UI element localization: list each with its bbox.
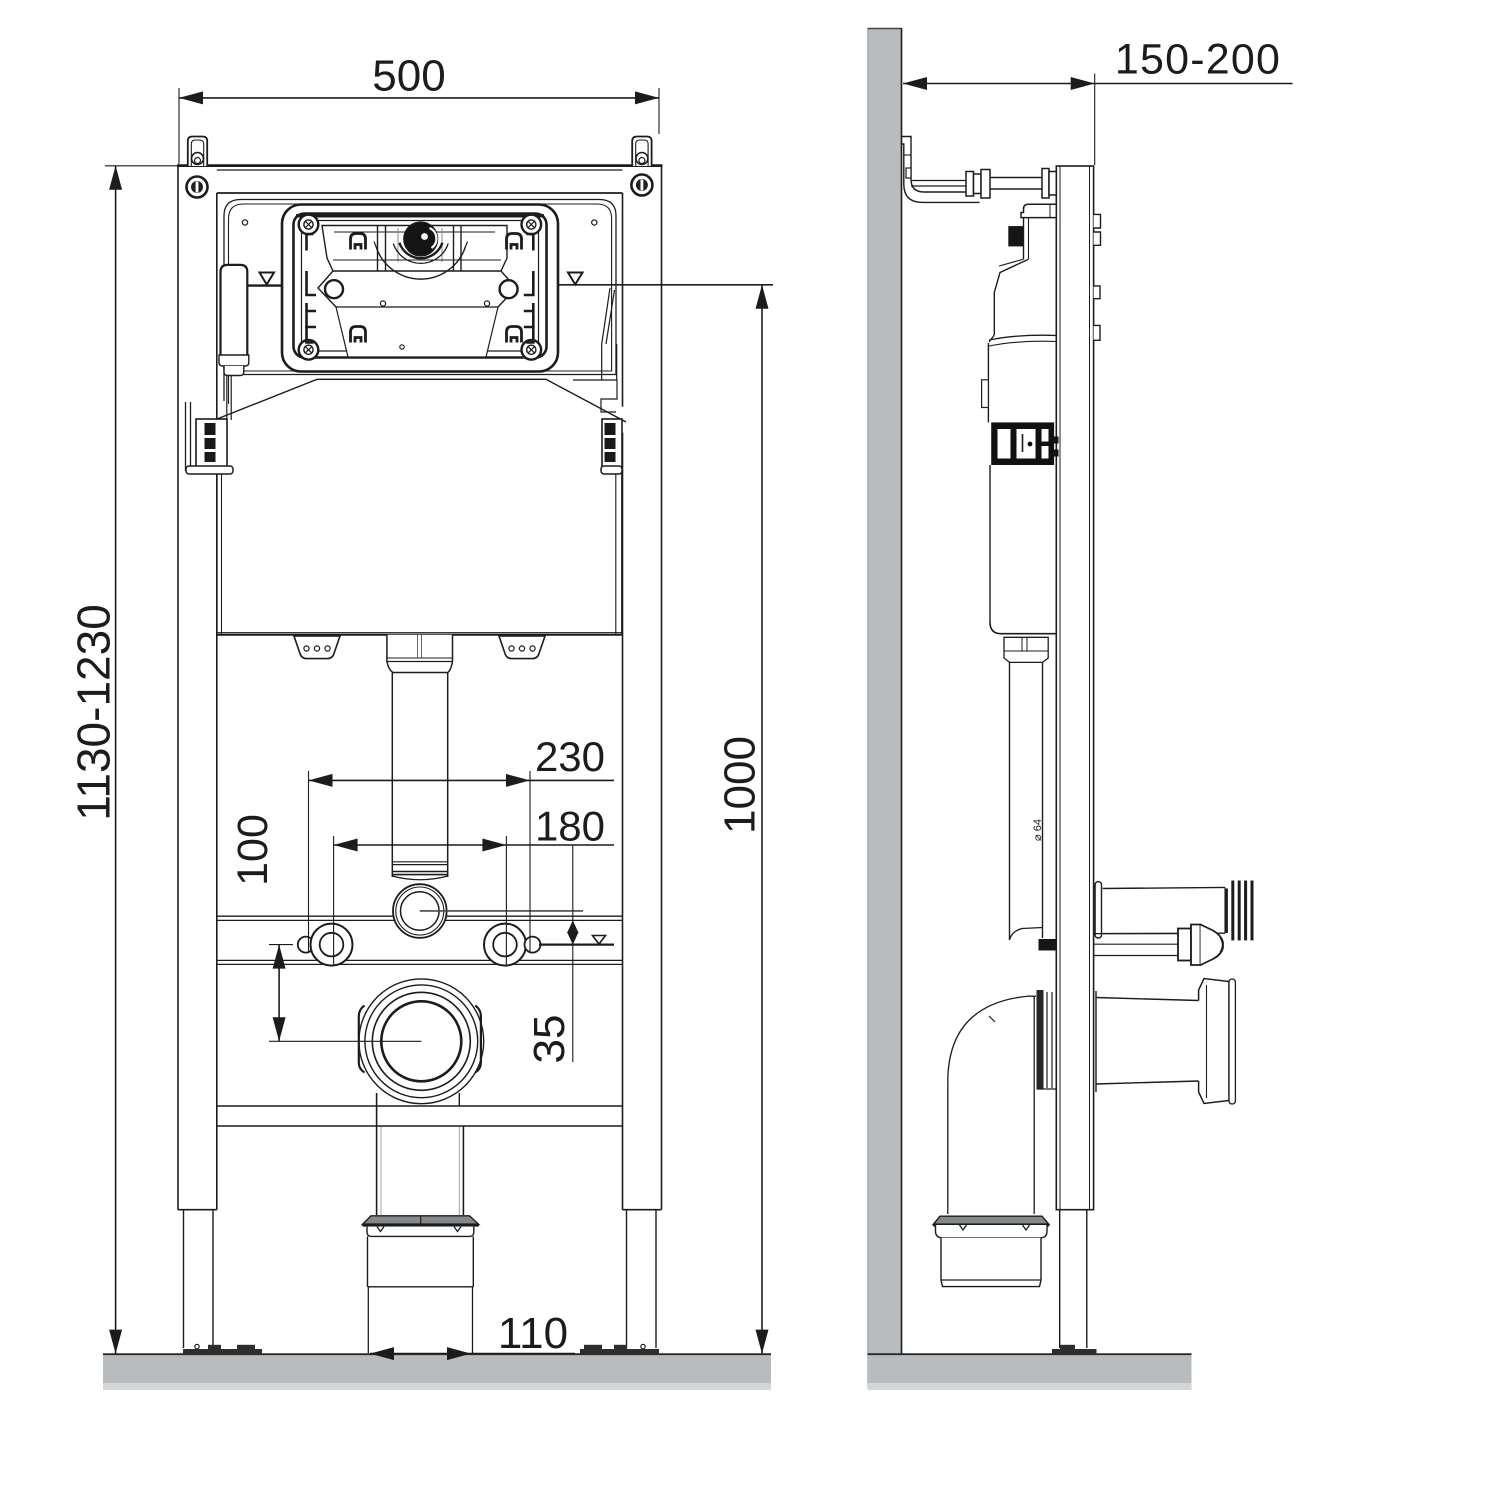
svg-text:500: 500 [372, 52, 445, 101]
svg-text:1000: 1000 [716, 736, 765, 834]
svg-text:⌀ 64: ⌀ 64 [1032, 819, 1044, 841]
svg-text:100: 100 [229, 814, 277, 886]
svg-text:230: 230 [535, 733, 605, 780]
svg-text:110: 110 [498, 1309, 568, 1358]
svg-text:35: 35 [525, 1015, 574, 1064]
svg-text:150-200: 150-200 [1115, 36, 1281, 84]
svg-text:180: 180 [535, 803, 605, 850]
svg-text:1130-1230: 1130-1230 [68, 604, 120, 821]
